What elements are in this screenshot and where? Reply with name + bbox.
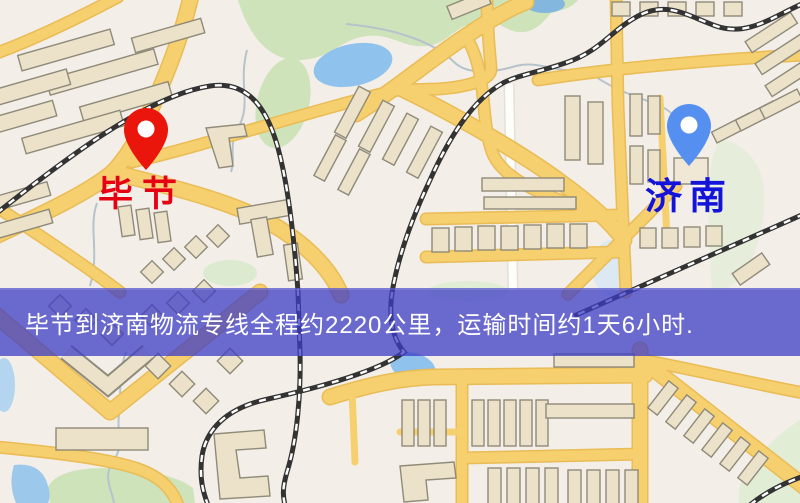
destination-label: 济南 <box>634 178 744 215</box>
map-background <box>0 0 800 503</box>
destination-pin-icon[interactable] <box>667 104 711 166</box>
route-info-banner: 毕节到济南物流专线全程约2220公里，运输时间约1天6小时. <box>0 288 800 356</box>
map-canvas: 毕节 济南 毕节到济南物流专线全程约2220公里，运输时间约1天6小时. <box>0 0 800 503</box>
route-info-text: 毕节到济南物流专线全程约2220公里，运输时间约1天6小时. <box>0 305 694 340</box>
origin-label: 毕节 <box>88 177 196 212</box>
origin-pin-icon[interactable] <box>124 108 168 170</box>
